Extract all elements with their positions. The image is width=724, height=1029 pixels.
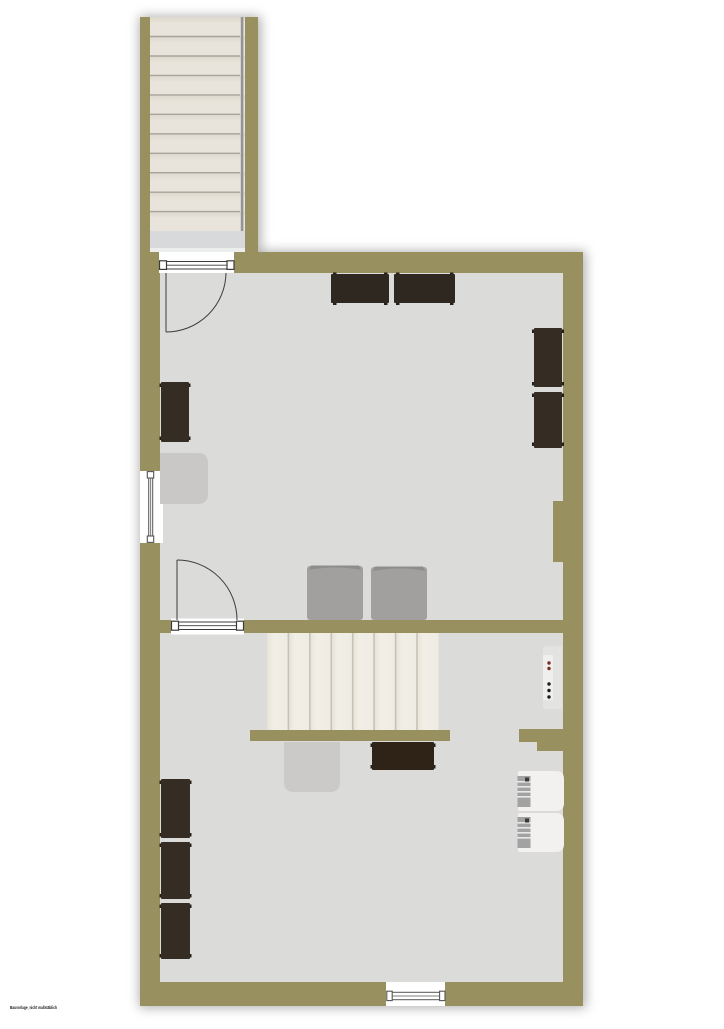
- svg-text:Bauvorlage_nicht maßstäblich: Bauvorlage_nicht maßstäblich: [10, 1005, 57, 1010]
